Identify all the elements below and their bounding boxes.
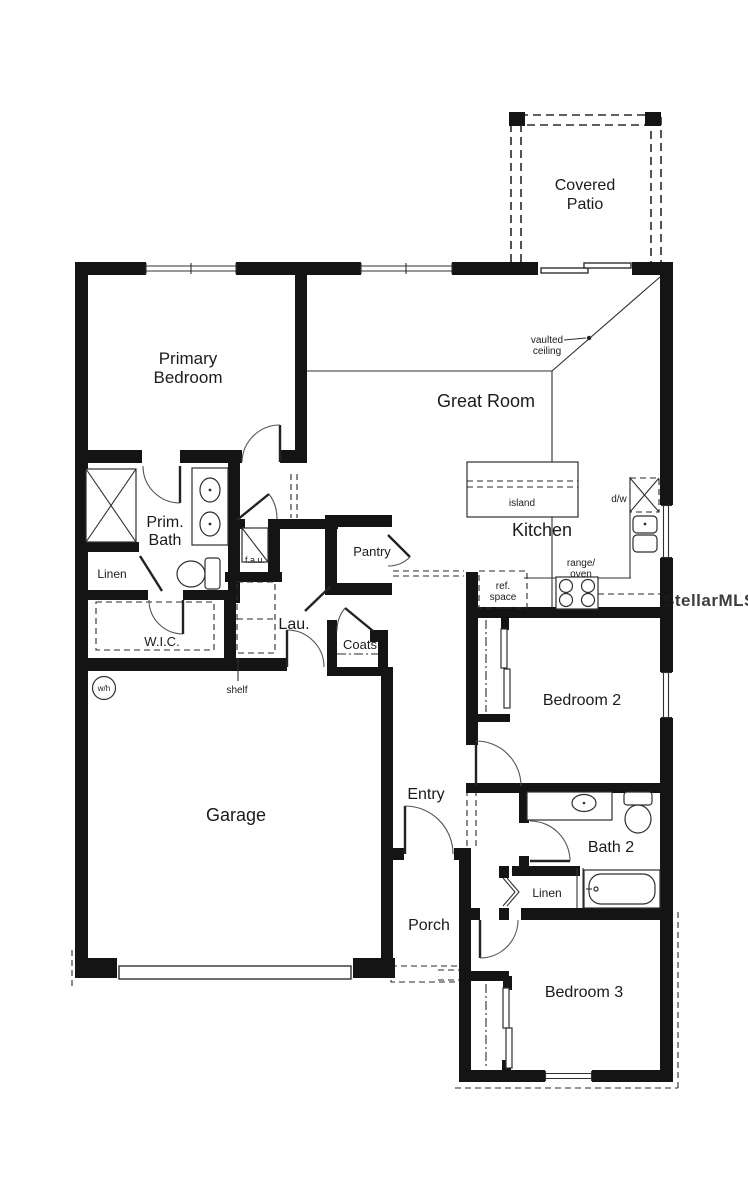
door-bedroom-3 (480, 920, 518, 958)
label-coats: Coats (343, 637, 377, 652)
label-shelf: shelf (226, 685, 247, 696)
label-laundry: Lau. (278, 616, 309, 633)
label-dishwasher: d/w (611, 494, 627, 505)
dishwasher-box (630, 478, 659, 512)
label-bedroom-2: Bedroom 2 (543, 692, 621, 709)
vanity-bath2 (527, 792, 612, 820)
label-range-oven: range/ (567, 558, 596, 569)
door-bedroom-2 (476, 741, 521, 786)
closet-bedroom3 (486, 984, 512, 1068)
label-range-oven-2: oven (570, 569, 592, 580)
label-kitchen: Kitchen (512, 520, 572, 540)
garage-door (119, 966, 351, 979)
shower (86, 469, 136, 542)
toilet-primary (177, 558, 220, 589)
label-covered-patio: Covered (555, 177, 615, 194)
door-coats (337, 608, 373, 631)
door-pantry (388, 535, 410, 566)
label-vaulted-ceiling: vaulted (531, 335, 563, 346)
door-fau (237, 494, 277, 520)
label-great-room: Great Room (437, 391, 535, 411)
closet-bedroom2 (486, 620, 510, 712)
label-island: island (509, 498, 535, 509)
label-ref-space: ref. (496, 581, 510, 592)
floor-plan-image: Covered Patio Primary Bedroom Great Room… (0, 0, 748, 1200)
toilet-bath2 (624, 792, 652, 833)
leader-dot (587, 336, 591, 340)
door-primary-bedroom (242, 425, 280, 462)
label-primary-bedroom-2: Bedroom (154, 368, 223, 387)
label-pantry: Pantry (353, 544, 391, 559)
door-laundry (305, 586, 331, 611)
label-prim-bath-2: Bath (149, 532, 182, 549)
label-primary-bedroom: Primary (159, 349, 218, 368)
label-bath-2: Bath 2 (588, 839, 634, 856)
label-water-heater: w/h (97, 684, 110, 693)
door-front (405, 806, 453, 854)
label-linen-primary: Linen (97, 567, 126, 581)
door-linen-bath2-bifold (503, 878, 519, 906)
label-wic: W.I.C. (144, 634, 179, 649)
kitchen-sink (633, 516, 657, 552)
label-covered-patio-2: Patio (567, 196, 604, 213)
label-entry: Entry (407, 786, 444, 803)
label-bedroom-3: Bedroom 3 (545, 984, 623, 1001)
door-bath-2 (530, 821, 570, 861)
label-vaulted-ceiling-2: ceiling (533, 346, 561, 357)
watermark: StellarMLS (663, 591, 748, 610)
label-fau: f.a.u. (245, 555, 265, 565)
label-porch: Porch (408, 917, 450, 934)
label-prim-bath: Prim. (146, 514, 183, 531)
door-wic (149, 600, 183, 634)
label-garage: Garage (206, 805, 266, 825)
label-linen-bath2: Linen (532, 886, 561, 900)
range-cooktop (556, 577, 598, 609)
door-linen-primary (140, 556, 162, 591)
vanity-primary (192, 468, 228, 545)
floor-plan-svg: Covered Patio Primary Bedroom Great Room… (0, 0, 748, 1200)
door-primary-bath (143, 466, 180, 503)
label-ref-space-2: space (490, 592, 517, 603)
door-laundry-garage (287, 630, 324, 667)
bathtub (584, 870, 660, 908)
